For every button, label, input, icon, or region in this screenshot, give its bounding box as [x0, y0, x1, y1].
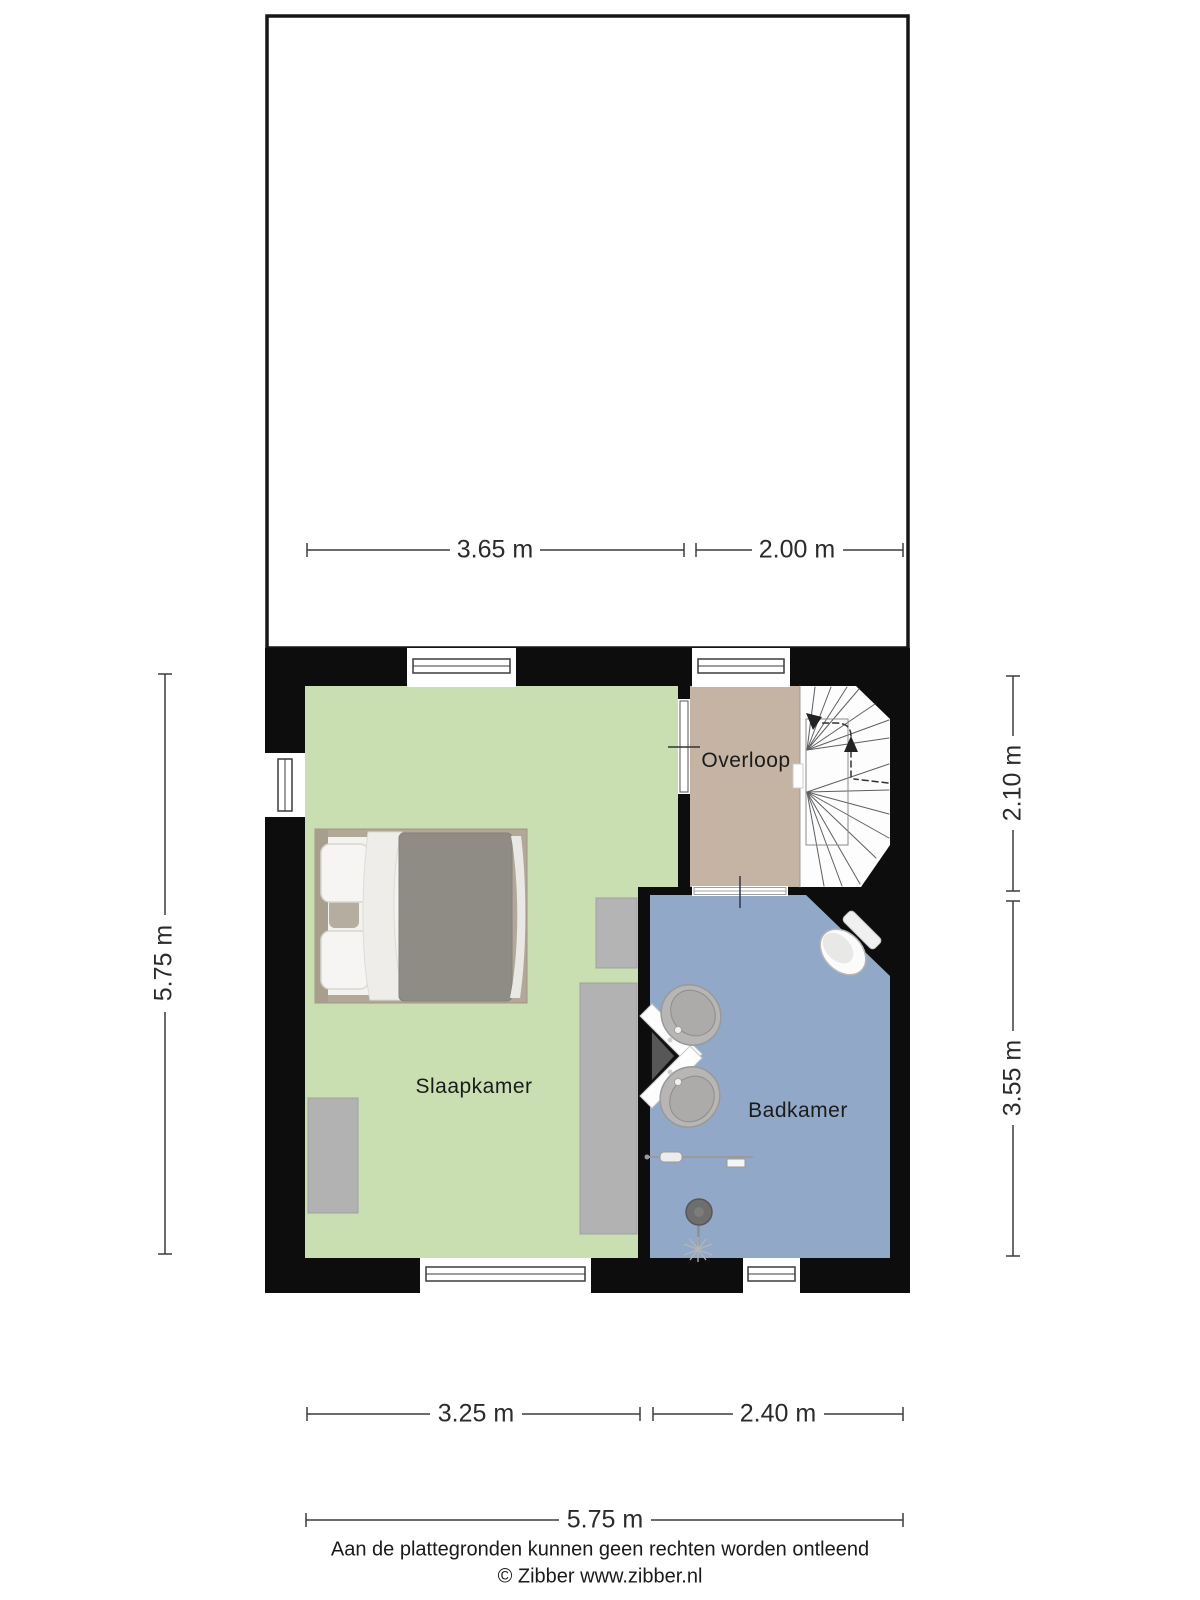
double-bed — [315, 829, 527, 1003]
window-bottom-bedroom — [420, 1258, 591, 1293]
window-top-landing — [692, 648, 790, 687]
wardrobe — [580, 983, 637, 1234]
pillow — [321, 931, 369, 989]
window-bottom-bathroom — [743, 1258, 800, 1293]
window-top-bedroom — [407, 648, 516, 687]
floorplan-drawing — [0, 0, 1200, 1600]
floorplan-page: Slaapkamer Overloop Badkamer 3.65 m 2.00… — [0, 0, 1200, 1600]
pillow — [321, 844, 369, 902]
duvet — [399, 833, 512, 1001]
room-overloop-floor — [690, 686, 800, 887]
attic-room-outline — [267, 16, 908, 648]
window-left-bedroom — [265, 753, 305, 817]
nightstand — [596, 898, 637, 968]
dresser — [308, 1098, 358, 1213]
